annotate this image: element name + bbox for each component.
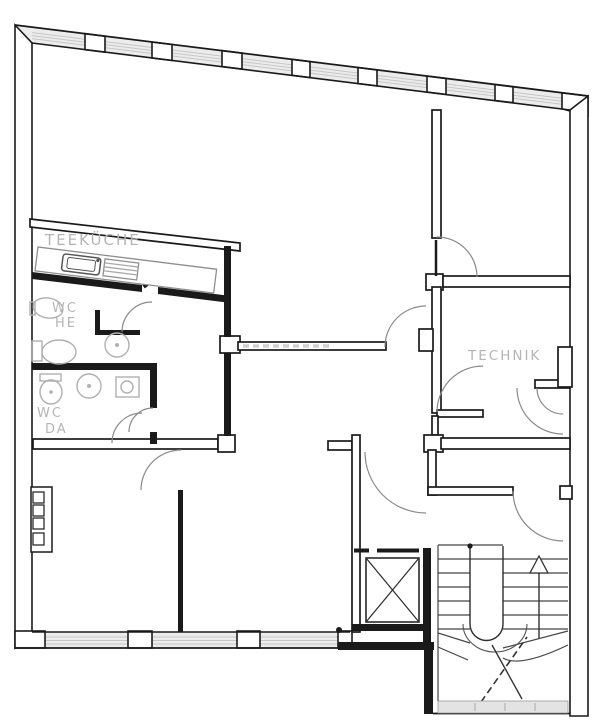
door-post <box>220 336 240 353</box>
wall-f-horizontal <box>428 487 513 495</box>
door-post <box>218 435 235 452</box>
stair-break-line-dashed <box>481 637 527 702</box>
door-frame <box>560 486 572 499</box>
room-divider-wall <box>178 490 183 632</box>
elevator <box>352 548 431 650</box>
stair-core-west-wall <box>352 435 360 632</box>
toilet-icon <box>32 340 76 364</box>
top-window-band <box>15 25 588 116</box>
wc-fixtures <box>30 296 139 404</box>
service-shaft <box>31 487 52 552</box>
left-wall <box>15 25 32 648</box>
interior-walls <box>33 110 572 632</box>
handrail-start-dot <box>467 543 472 548</box>
washbasin-icon <box>105 333 129 357</box>
hall-wall <box>238 342 386 350</box>
stair-landing <box>438 701 568 713</box>
room-label-wc-he-1: WC <box>52 301 78 316</box>
sink-square-icon <box>116 377 139 397</box>
room-label-technik: TECHNIK <box>467 348 541 364</box>
corridor-wall-stub <box>328 441 352 450</box>
room-label-wc-da-2: DA <box>45 422 68 437</box>
wall-stub-tick <box>432 416 438 435</box>
corridor-wall-east <box>441 438 570 449</box>
technik-north-wall <box>443 276 570 287</box>
wall-pilaster <box>419 329 433 351</box>
room-label-wc-da-1: WC <box>37 406 63 421</box>
stair-well-rail <box>463 543 527 652</box>
floor-plan-page: TEEKÜCHE WC HE WC DA TECHNIK <box>0 0 601 727</box>
room-label-teekueche: TEEKÜCHE <box>44 230 141 249</box>
toilet-icon <box>40 374 62 404</box>
junction-dot <box>336 627 342 633</box>
technik-wall-niche <box>558 347 572 387</box>
stair-break-line <box>492 645 522 699</box>
wall-vertical-north <box>432 110 441 238</box>
stair-up-arrow-icon <box>530 556 548 638</box>
right-wall <box>570 96 588 716</box>
floor-plan-drawing: TEEKÜCHE WC HE WC DA TECHNIK <box>0 0 601 727</box>
room-label-wc-he-2: HE <box>55 316 77 331</box>
bottom-window-band <box>15 631 352 648</box>
outer-walls <box>15 25 588 716</box>
wall-stub <box>437 410 483 417</box>
washbasin-icon <box>77 374 101 398</box>
corridor-wall-west <box>33 439 218 449</box>
